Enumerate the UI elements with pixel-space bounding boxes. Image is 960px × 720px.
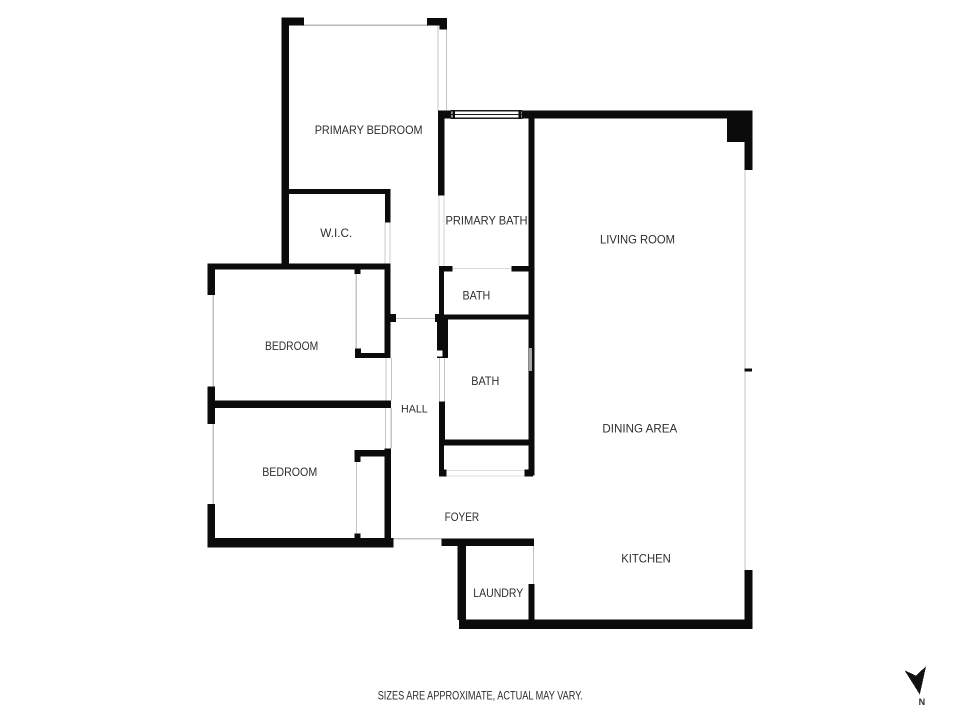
svg-text:SIZES ARE APPROXIMATE, ACTUAL: SIZES ARE APPROXIMATE, ACTUAL MAY VARY.	[378, 689, 583, 703]
svg-text:BEDROOM: BEDROOM	[265, 339, 318, 353]
svg-text:DINING AREA: DINING AREA	[602, 422, 677, 436]
svg-text:FOYER: FOYER	[445, 510, 480, 524]
svg-text:BATH: BATH	[463, 289, 491, 303]
svg-text:LIVING ROOM: LIVING ROOM	[600, 233, 675, 247]
svg-text:LAUNDRY: LAUNDRY	[473, 586, 523, 600]
svg-text:HALL: HALL	[401, 403, 428, 415]
svg-text:W.I.C.: W.I.C.	[320, 226, 352, 240]
svg-text:BATH: BATH	[471, 374, 499, 388]
svg-text:BEDROOM: BEDROOM	[262, 465, 317, 479]
svg-text:KITCHEN: KITCHEN	[621, 551, 671, 565]
svg-text:N: N	[919, 697, 926, 707]
svg-text:PRIMARY BATH: PRIMARY BATH	[446, 213, 528, 227]
svg-text:PRIMARY BEDROOM: PRIMARY BEDROOM	[315, 123, 423, 137]
